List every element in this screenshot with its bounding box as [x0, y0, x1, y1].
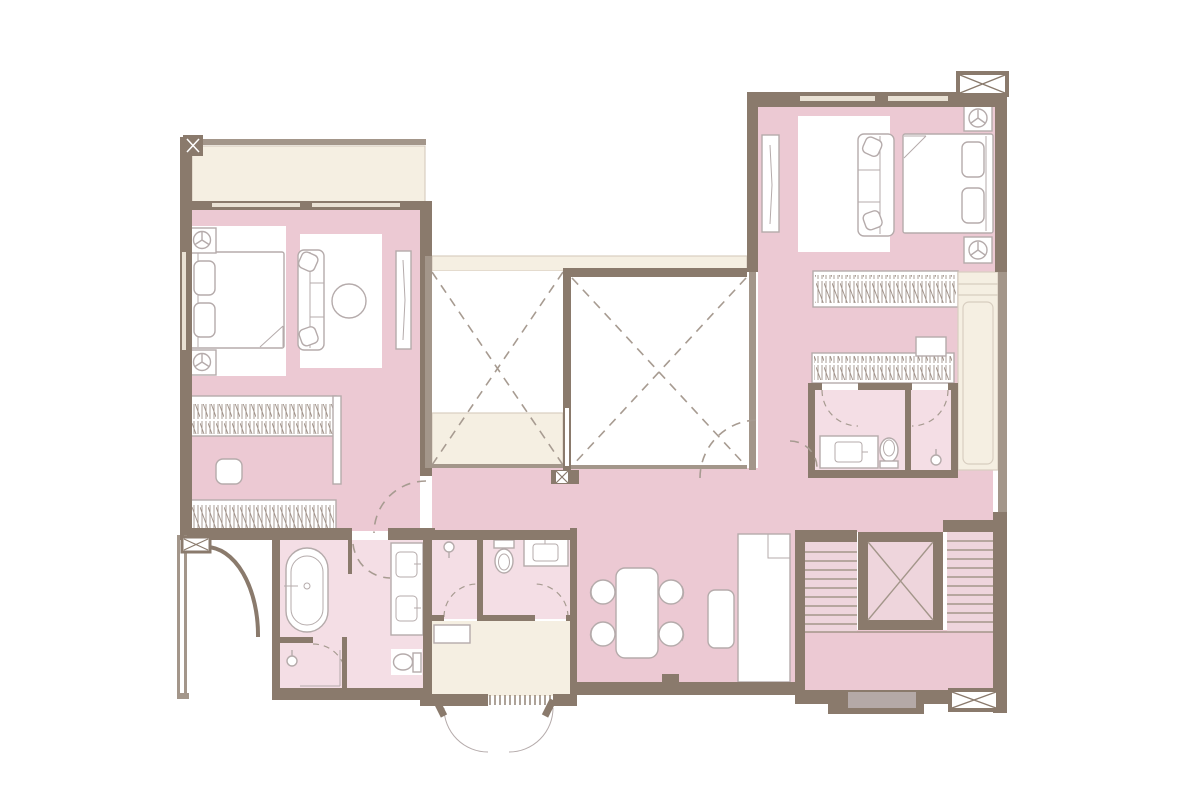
wall-masterbath-bottom	[272, 688, 432, 700]
wardrobe-hangers	[192, 404, 334, 434]
dining-chair	[590, 622, 615, 646]
wall-bath2-bottom-c	[566, 615, 577, 621]
curved-wall	[206, 547, 258, 637]
wardrobe-hangers	[814, 356, 952, 380]
table-lamp-icon	[194, 354, 211, 371]
sliding-panel	[333, 396, 341, 484]
wall-right-exterior-stairs	[993, 512, 1007, 713]
wall-shower-top	[280, 637, 313, 643]
table-lamp-icon	[969, 109, 987, 127]
wall-bath3-left	[808, 383, 815, 478]
balcony-rail	[186, 139, 426, 145]
freestanding-bathtub	[286, 548, 328, 632]
window-slit	[800, 96, 875, 101]
wall-laundry-bottom-right	[553, 694, 577, 706]
pillow	[194, 303, 215, 337]
drawer-box	[916, 337, 946, 356]
wall-masterbath-left	[272, 540, 280, 700]
void-1-cream-lower	[432, 413, 563, 467]
dining-chair	[590, 580, 615, 604]
toilet-bowl	[495, 549, 513, 573]
wall-bedroom2-left-thin	[749, 272, 756, 470]
wall-hall-stub	[662, 674, 679, 684]
wall-bath2-right	[570, 528, 577, 700]
column-x-marker	[958, 73, 1007, 95]
voids	[432, 256, 747, 469]
toilet-tank	[880, 461, 898, 468]
wall-stair-top-left	[795, 530, 857, 542]
wall-bath3-top-b	[858, 383, 912, 390]
toilet-bowl	[880, 438, 898, 462]
wall-right-exterior-mid	[998, 272, 1007, 516]
bedroom-2-passage-floor	[758, 383, 810, 473]
wall-void1-left	[425, 256, 432, 468]
wall-bath2-top	[432, 530, 577, 540]
pillow	[962, 188, 984, 223]
balcony-floor	[192, 146, 425, 204]
terrace-edge	[177, 535, 258, 699]
entry-door-grey	[848, 692, 916, 708]
pillow	[962, 142, 984, 177]
wall-bedroom2-left	[747, 92, 758, 272]
floor-plan-canvas	[0, 0, 1200, 800]
dining-chair	[659, 622, 684, 646]
vanity	[524, 539, 568, 566]
table-lamp-icon	[969, 241, 987, 259]
void-2-bottom-edge	[571, 465, 747, 469]
column-x-marker	[182, 537, 210, 552]
void-1-bottom-edge	[432, 464, 563, 468]
wall-shower-right	[342, 637, 347, 688]
column-x-marker	[183, 135, 203, 156]
counter	[434, 625, 470, 643]
window-slit	[888, 96, 948, 101]
window-slit	[212, 203, 300, 207]
outswing-door-arc	[444, 708, 488, 752]
pillow	[194, 261, 215, 295]
closet-column	[958, 272, 998, 470]
column-x-marker	[556, 471, 568, 483]
stair-right-flight-floor	[947, 532, 993, 632]
wall-void2-top	[563, 268, 747, 277]
wall-bath2-bottom-a	[427, 615, 444, 621]
wall-bath2-partition	[477, 537, 483, 617]
wall-hall-bottom	[577, 682, 795, 695]
void-divider-slot	[565, 408, 569, 466]
wall-stair-top-right	[943, 520, 1007, 532]
ventilation-grille	[490, 695, 550, 705]
dining-table	[616, 568, 658, 658]
wall-bath3-partition	[905, 390, 911, 470]
floor-plan	[0, 0, 1200, 800]
dining-chair	[659, 580, 684, 604]
toilet-bowl	[394, 654, 413, 670]
column-x-marker	[950, 690, 998, 710]
toilet-tank	[494, 540, 514, 548]
wall-bath2-bottom-b	[477, 615, 535, 621]
window-slit	[312, 203, 400, 207]
wall-right-exterior-upper	[995, 92, 1007, 272]
wardrobe-hangers	[815, 275, 956, 303]
toilet-tank	[413, 653, 421, 672]
wall-masterbath-right	[423, 528, 432, 700]
bench-console	[708, 590, 734, 648]
tall-cabinet	[738, 534, 790, 682]
round-side-table	[332, 284, 366, 318]
vanity	[820, 436, 878, 468]
window-slit	[182, 252, 186, 350]
ottoman	[216, 459, 242, 484]
wall-bath3-bottom	[808, 470, 958, 478]
wall-bath-stub	[348, 540, 352, 574]
wall-bath3-right	[951, 383, 958, 478]
stair-landing-floor	[805, 630, 993, 692]
wall-laundry-bottom-left	[420, 694, 488, 706]
table-lamp-icon	[194, 232, 211, 249]
wardrobe-hangers	[192, 504, 334, 530]
stair-left-flight-floor	[805, 542, 857, 632]
wall-stair-left	[795, 530, 805, 700]
